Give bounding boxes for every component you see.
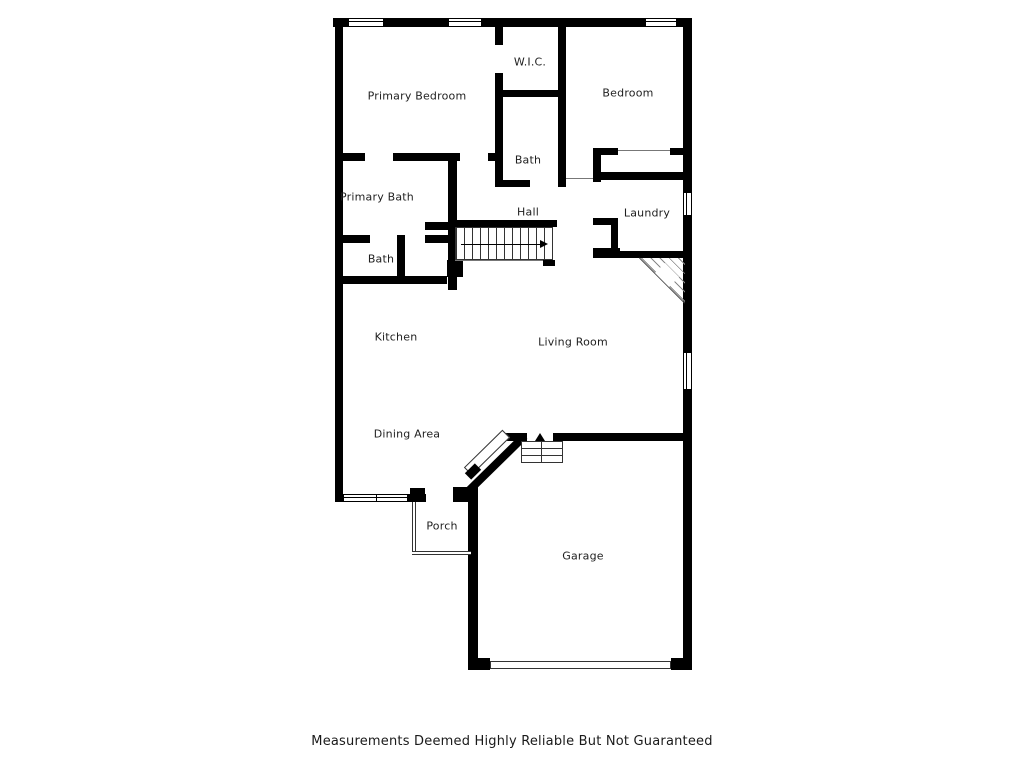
window	[683, 352, 692, 390]
wall-segment	[543, 260, 555, 266]
wall-segment	[448, 220, 557, 227]
wall-segment	[335, 153, 365, 161]
wall-segment	[488, 153, 498, 161]
floorplan-canvas: Primary BedroomW.I.C.BedroomBathPrimary …	[0, 0, 1024, 768]
wall-segment	[468, 658, 490, 670]
wall-segment	[498, 90, 562, 97]
room-label-garage: Garage	[562, 550, 603, 563]
wall-segment	[683, 390, 692, 670]
room-label-bath: Bath	[515, 154, 541, 167]
wall-segment	[410, 488, 425, 502]
wall-segment	[447, 260, 463, 277]
wall-segment	[425, 222, 448, 230]
wall-segment	[495, 27, 503, 45]
wall-segment	[683, 18, 692, 192]
room-label-kitchen: Kitchen	[375, 331, 418, 344]
wall-segment	[593, 251, 683, 258]
wall-segment	[670, 148, 683, 155]
window	[683, 192, 692, 216]
wall-segment	[498, 180, 530, 187]
wall-segment	[335, 276, 447, 284]
room-label-dining-area: Dining Area	[374, 428, 441, 441]
wall-segment	[425, 235, 448, 243]
room-label-w-i-c: W.I.C.	[514, 56, 546, 69]
wall-segment	[553, 433, 692, 441]
disclaimer-text: Measurements Deemed Highly Reliable But …	[0, 734, 1024, 749]
garage-door	[490, 661, 671, 669]
thin-line	[566, 178, 593, 179]
wall-segment	[335, 18, 343, 502]
window	[343, 494, 408, 502]
stair-direction-arrow	[461, 244, 540, 245]
room-label-laundry: Laundry	[624, 207, 670, 220]
window	[645, 18, 677, 27]
window-mullion	[376, 495, 377, 501]
porch-edge-bottom	[412, 551, 471, 555]
hall-stairs	[455, 227, 553, 260]
wall-segment	[558, 27, 566, 187]
room-label-primary-bath: Primary Bath	[340, 191, 414, 204]
porch-edge-left	[412, 502, 416, 553]
room-label-bath: Bath	[368, 253, 394, 266]
thin-line	[618, 150, 670, 151]
stair-arrowhead	[540, 240, 548, 248]
fireplace-diamond	[651, 263, 679, 291]
wall-segment	[333, 18, 692, 27]
window	[348, 18, 384, 27]
room-label-porch: Porch	[426, 520, 457, 533]
entry-steps-arrow	[535, 433, 545, 441]
room-label-bedroom: Bedroom	[602, 87, 653, 100]
thin-line	[455, 260, 543, 261]
room-label-primary-bedroom: Primary Bedroom	[368, 90, 467, 103]
wall-segment	[593, 172, 683, 180]
wall-segment	[468, 487, 478, 670]
entry-steps	[521, 441, 563, 463]
corner-fireplace	[640, 258, 685, 303]
room-label-living-room: Living Room	[538, 336, 608, 349]
wall-segment	[671, 658, 692, 670]
wall-segment	[611, 218, 618, 251]
window	[448, 18, 482, 27]
wall-segment	[593, 148, 601, 182]
wall-segment	[397, 235, 405, 277]
room-label-hall: Hall	[517, 206, 539, 219]
wall-segment	[335, 235, 370, 243]
